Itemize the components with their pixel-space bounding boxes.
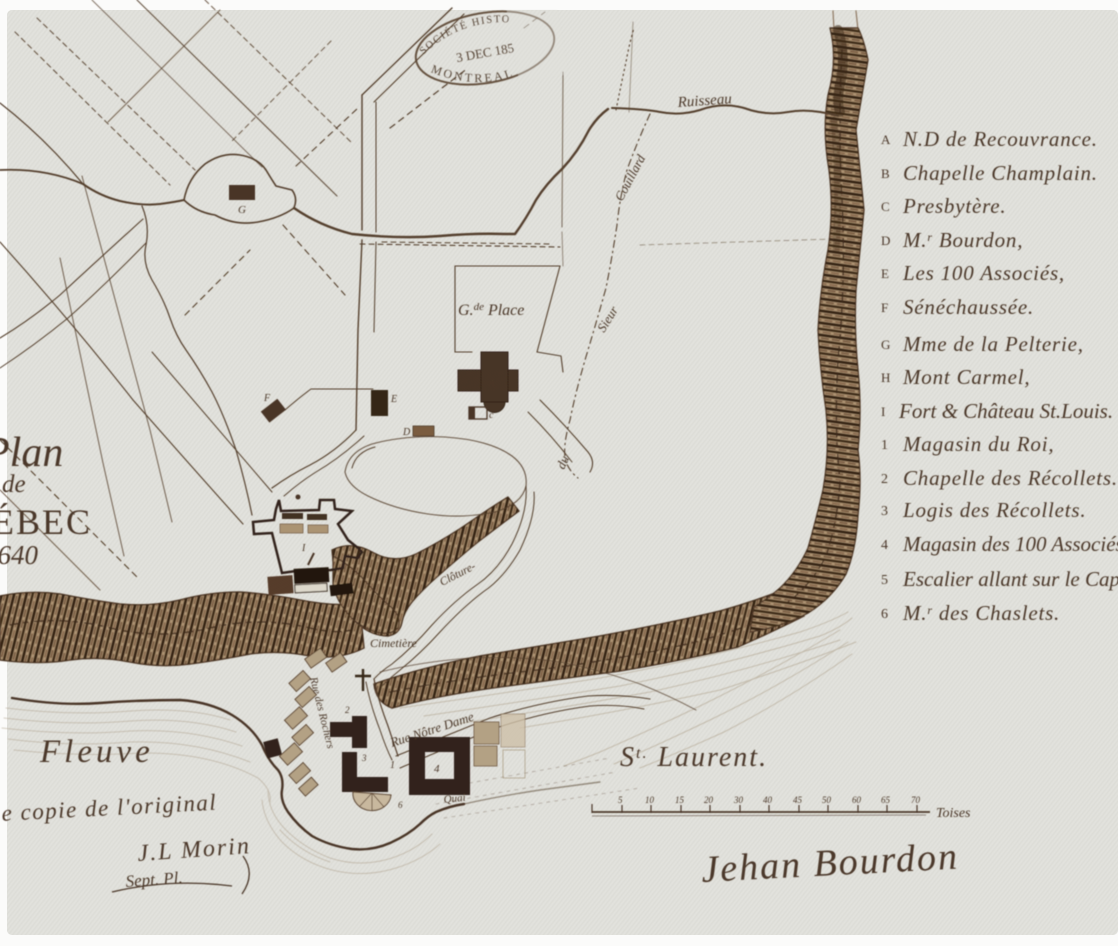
svg-text:15: 15 (675, 795, 685, 805)
svg-text:40: 40 (763, 795, 773, 805)
svg-text:Les 100 Associés,: Les 100 Associés, (902, 261, 1065, 285)
svg-text:70: 70 (911, 795, 921, 805)
svg-text:F: F (263, 393, 271, 404)
svg-text:Quai: Quai (443, 792, 466, 806)
svg-text:de: de (2, 471, 26, 498)
svg-text:Escalier allant sur le Cap: Escalier allant sur le Cap (902, 567, 1118, 591)
svg-text:Mont Carmel,: Mont Carmel, (902, 365, 1030, 389)
svg-text:6: 6 (398, 800, 403, 810)
svg-text:Fleuve: Fleuve (39, 734, 154, 770)
svg-text:UÉBEC: UÉBEC (0, 502, 92, 542)
svg-text:50: 50 (822, 795, 832, 805)
svg-text:4: 4 (881, 538, 889, 553)
svg-text:20: 20 (704, 795, 714, 805)
svg-text:C: C (881, 199, 890, 214)
svg-text:3: 3 (361, 753, 367, 763)
svg-text:Mme de la Pelterie,: Mme de la Pelterie, (902, 332, 1084, 356)
svg-text:H: H (881, 370, 891, 385)
svg-text:M.r des Chaslets.: M.r des Chaslets. (902, 601, 1060, 625)
svg-text:Sénéchaussée.: Sénéchaussée. (903, 295, 1034, 319)
svg-text:I: I (881, 404, 886, 419)
svg-text:A: A (881, 132, 891, 147)
svg-text:M.r Bourdon,: M.r Bourdon, (902, 228, 1023, 252)
svg-text:65: 65 (881, 795, 891, 805)
svg-text:D: D (881, 233, 891, 248)
svg-text:Fort & Château St.Louis.: Fort & Château St.Louis. (898, 399, 1113, 423)
svg-text:Toises: Toises (936, 806, 971, 821)
svg-text:1: 1 (390, 760, 395, 771)
svg-text:Logis des Récollets.: Logis des Récollets. (902, 498, 1086, 522)
svg-text:2: 2 (345, 705, 350, 715)
svg-text:5: 5 (618, 795, 623, 805)
svg-text:2: 2 (881, 472, 889, 487)
svg-text:30: 30 (733, 795, 744, 805)
svg-text:E: E (390, 394, 397, 405)
svg-text:Chapelle Champlain.: Chapelle Champlain. (903, 161, 1098, 185)
svg-text:Magasin des 100 Associés.: Magasin des 100 Associés. (902, 532, 1118, 556)
svg-text:60: 60 (852, 795, 862, 805)
svg-text:c: c (489, 410, 494, 421)
svg-text:G.de Place: G.de Place (458, 301, 524, 319)
svg-text:A: A (488, 378, 495, 388)
svg-text:Presbytère.: Presbytère. (902, 194, 1006, 218)
svg-text:F: F (881, 300, 889, 315)
svg-text:G: G (881, 337, 891, 352)
svg-text:E: E (881, 266, 890, 281)
svg-text:N.D de Recouvrance.: N.D de Recouvrance. (902, 127, 1098, 151)
svg-text:10: 10 (645, 795, 655, 805)
svg-text:D: D (402, 427, 411, 438)
svg-text:Magasin du Roi,: Magasin du Roi, (902, 432, 1054, 456)
svg-text:Plan: Plan (0, 430, 63, 476)
svg-text:Chapelle des Récollets.: Chapelle des Récollets. (903, 466, 1118, 490)
svg-text:3: 3 (881, 504, 889, 519)
svg-text:G: G (238, 204, 246, 216)
svg-text:Cimetière: Cimetière (370, 636, 418, 650)
svg-text:I: I (301, 543, 306, 554)
svg-text:5: 5 (881, 573, 889, 588)
svg-text:45: 45 (793, 795, 803, 805)
svg-text:B: B (881, 166, 890, 181)
svg-text:1: 1 (881, 438, 889, 453)
svg-text:1640: 1640 (0, 540, 39, 570)
svg-text:6: 6 (881, 607, 889, 622)
svg-text:4: 4 (434, 763, 440, 775)
